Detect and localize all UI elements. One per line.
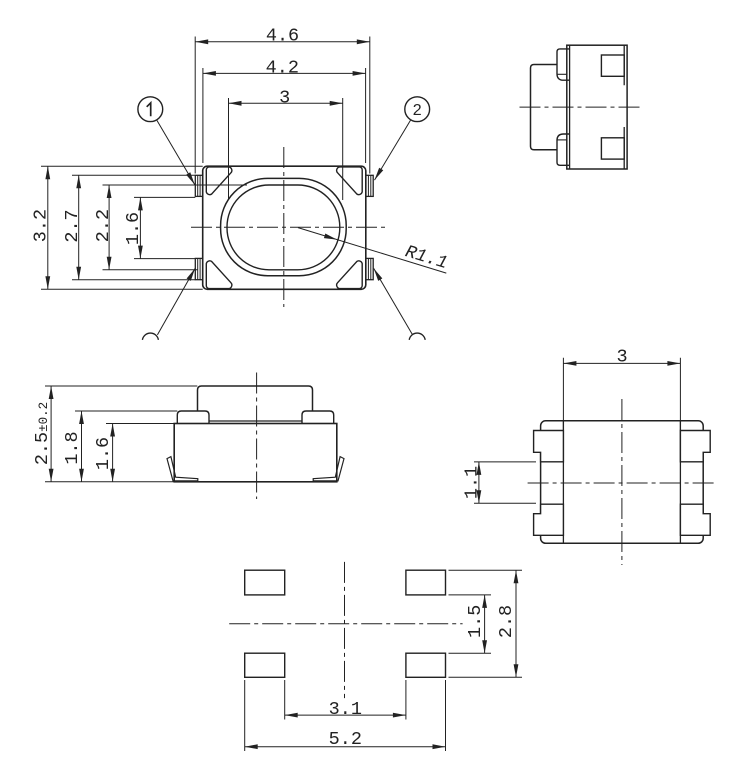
svg-text:3: 3 bbox=[279, 87, 290, 108]
svg-text:1.6: 1.6 bbox=[93, 437, 114, 470]
svg-text:3: 3 bbox=[616, 346, 627, 367]
svg-text:R1.1: R1.1 bbox=[403, 242, 450, 274]
svg-text:2.2: 2.2 bbox=[93, 209, 114, 242]
svg-text:2.7: 2.7 bbox=[62, 209, 83, 242]
svg-text:1.1: 1.1 bbox=[462, 466, 483, 499]
svg-text:3.2: 3.2 bbox=[30, 209, 51, 242]
svg-text:2: 2 bbox=[413, 102, 422, 119]
svg-text:1.5: 1.5 bbox=[465, 605, 486, 638]
svg-text:2.8: 2.8 bbox=[496, 605, 517, 638]
svg-text:4.2: 4.2 bbox=[266, 57, 299, 78]
svg-text:1.8: 1.8 bbox=[62, 431, 83, 464]
svg-text:3.1: 3.1 bbox=[329, 699, 362, 720]
svg-text:4.6: 4.6 bbox=[266, 26, 299, 47]
svg-text:2.5±0.2: 2.5±0.2 bbox=[32, 402, 53, 465]
svg-text:5.2: 5.2 bbox=[329, 729, 362, 750]
svg-text:1.6: 1.6 bbox=[123, 212, 144, 245]
